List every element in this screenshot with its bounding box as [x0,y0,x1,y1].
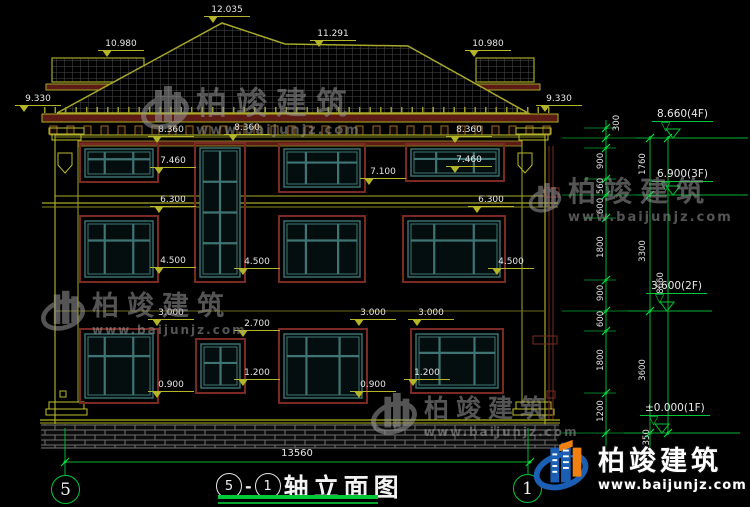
elevation-mark: 12.035 [204,5,250,17]
dimension-label: 3300 [638,229,648,273]
brand-logo-icon [534,436,592,496]
window [279,216,365,282]
elevation-mark: 11.291 [310,29,356,41]
dentil-block [203,126,210,135]
dentil-block [339,126,346,135]
elevation-mark: 6.300 [468,195,514,207]
dentil-block [407,126,414,135]
window-frame [284,221,360,277]
elevation-mark: 6.300 [150,195,196,207]
axis-bubble-5: 5 [51,475,80,504]
brick-base [40,420,560,448]
elevation-mark: 10.980 [465,39,511,51]
elevation-mark: 3.000 [408,308,454,320]
dentil-block [271,126,278,135]
windows [80,143,505,403]
dimension-label: 600 [596,297,606,341]
dentil-block [373,126,380,135]
overall-width-dim: 13560 [265,448,329,459]
elevation-mark: 8.360 [224,123,270,135]
dimension-label: 300 [612,101,622,145]
dimension-label: 600 [596,184,606,228]
elevation-mark: 3.000 [148,308,194,320]
dimension-label: 1760 [638,142,648,186]
title-separator: - [245,477,252,496]
elevation-mark: 1.200 [234,368,280,380]
title-underline-thin [218,502,378,504]
window [411,329,503,393]
dentil-block [135,126,142,135]
elevation-mark: 9.330 [536,94,582,106]
elevation-mark: 7.460 [446,155,492,167]
elevation-mark: 4.500 [234,257,280,269]
dimension-label: 1800 [596,338,606,382]
dentil-block [356,126,363,135]
level-marker: 6.900(3F) [652,168,713,182]
dentil-block [288,126,295,135]
window-frame [85,149,153,177]
window-frame [408,221,500,277]
dimension-label: 3600 [638,348,648,392]
dentil-block [424,126,431,135]
elevation-mark: 0.900 [148,380,194,392]
window-frame [85,334,153,398]
dentil-block [492,126,499,135]
dim-node [64,461,67,464]
dim-node [529,461,532,464]
elevation-mark: 7.460 [150,156,196,168]
elevation-mark: 7.100 [360,167,406,179]
cad-canvas: 8.660(4F) 6.900(3F) 3.600(2F) ±0.000(1F)… [0,0,750,507]
dentil-block [84,126,91,135]
window-frame [284,149,360,187]
elevation-mark: 4.500 [488,257,534,269]
window [80,216,158,282]
title-underline [218,495,378,499]
window [80,144,158,182]
elevation-mark: 3.000 [350,308,396,320]
dentil-block [305,126,312,135]
window [80,329,158,403]
dentil-block [390,126,397,135]
dimension-label: 1800 [596,225,606,269]
elevation-mark: 4.500 [150,256,196,268]
window [403,216,505,282]
dentil-block [101,126,108,135]
elevation-mark: 9.330 [15,94,61,106]
window-frame [85,221,153,277]
brand-logo: 柏竣建筑 www.baijunjz.com [534,436,747,496]
elevation-mark: 1.200 [404,368,450,380]
dimension-label: 8660 [656,261,666,305]
dentil-block [322,126,329,135]
dimension-label: 1200 [596,389,606,433]
elevation-mark: 2.700 [234,319,280,331]
elevation-mark: 0.900 [350,380,396,392]
level-marker: ±0.000(1F) [640,402,710,416]
brand-logo-url: www.baijunjz.com [598,478,747,493]
elevation-mark: 8.360 [446,125,492,137]
elevation-mark: 8.360 [148,125,194,137]
dentil-block [509,126,516,135]
roof [44,23,556,113]
window [279,144,365,192]
elevation-mark: 10.980 [98,39,144,51]
level-marker: 8.660(4F) [652,108,713,122]
brand-logo-text: 柏竣建筑 [598,439,747,478]
dentil-block [118,126,125,135]
